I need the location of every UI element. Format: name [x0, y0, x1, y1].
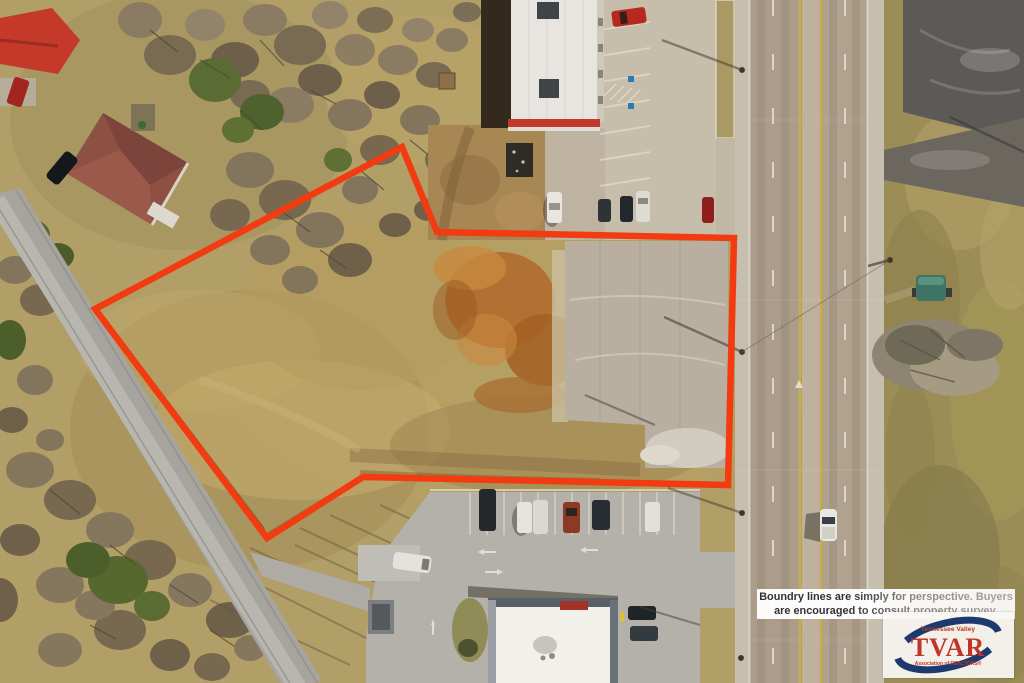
white-suv — [636, 191, 650, 222]
red-awning-stripe — [508, 119, 600, 127]
dark-car — [620, 196, 633, 222]
red-car — [702, 197, 714, 223]
dark-suv — [592, 500, 610, 530]
building-shadow — [481, 0, 511, 128]
dark-pickup — [479, 489, 496, 531]
white-car — [645, 502, 660, 532]
dark-car — [630, 626, 658, 641]
logo-region-text: Tennessee Valley — [921, 626, 975, 633]
highway-entrance-drive — [700, 552, 740, 608]
disclaimer-line1: Boundry lines are simply for perspective… — [757, 591, 1015, 605]
small-shed — [439, 73, 455, 89]
rust-truck — [563, 502, 580, 533]
logo-subtitle-text: Association of REALTORS® — [915, 660, 982, 667]
bottom-parking-lot — [358, 489, 740, 683]
hvac-unit — [537, 2, 559, 19]
top-right-asphalt-lot — [884, 0, 1024, 207]
bottom-restaurant-building — [488, 598, 624, 683]
grass-island — [716, 0, 734, 138]
aerial-scene — [0, 0, 1024, 683]
top-retail-building — [508, 0, 604, 131]
white-van — [533, 500, 548, 534]
highway-vehicle — [804, 509, 837, 542]
logo-acronym-text: TVAR — [911, 633, 985, 662]
hvac-unit — [539, 79, 559, 98]
red-roof-patch — [560, 601, 588, 610]
tvar-logo-graphic: Tennessee Valley TVAR Association of REA… — [883, 612, 1014, 678]
handicap-mark — [628, 76, 634, 82]
handicap-mark — [628, 103, 634, 109]
aerial-photo-canvas: Boundry lines are simply for perspective… — [0, 0, 1024, 683]
white-car — [517, 502, 532, 533]
dark-car — [598, 199, 611, 222]
dumpster — [506, 143, 533, 177]
tvar-logo: Tennessee Valley TVAR Association of REA… — [883, 612, 1014, 678]
